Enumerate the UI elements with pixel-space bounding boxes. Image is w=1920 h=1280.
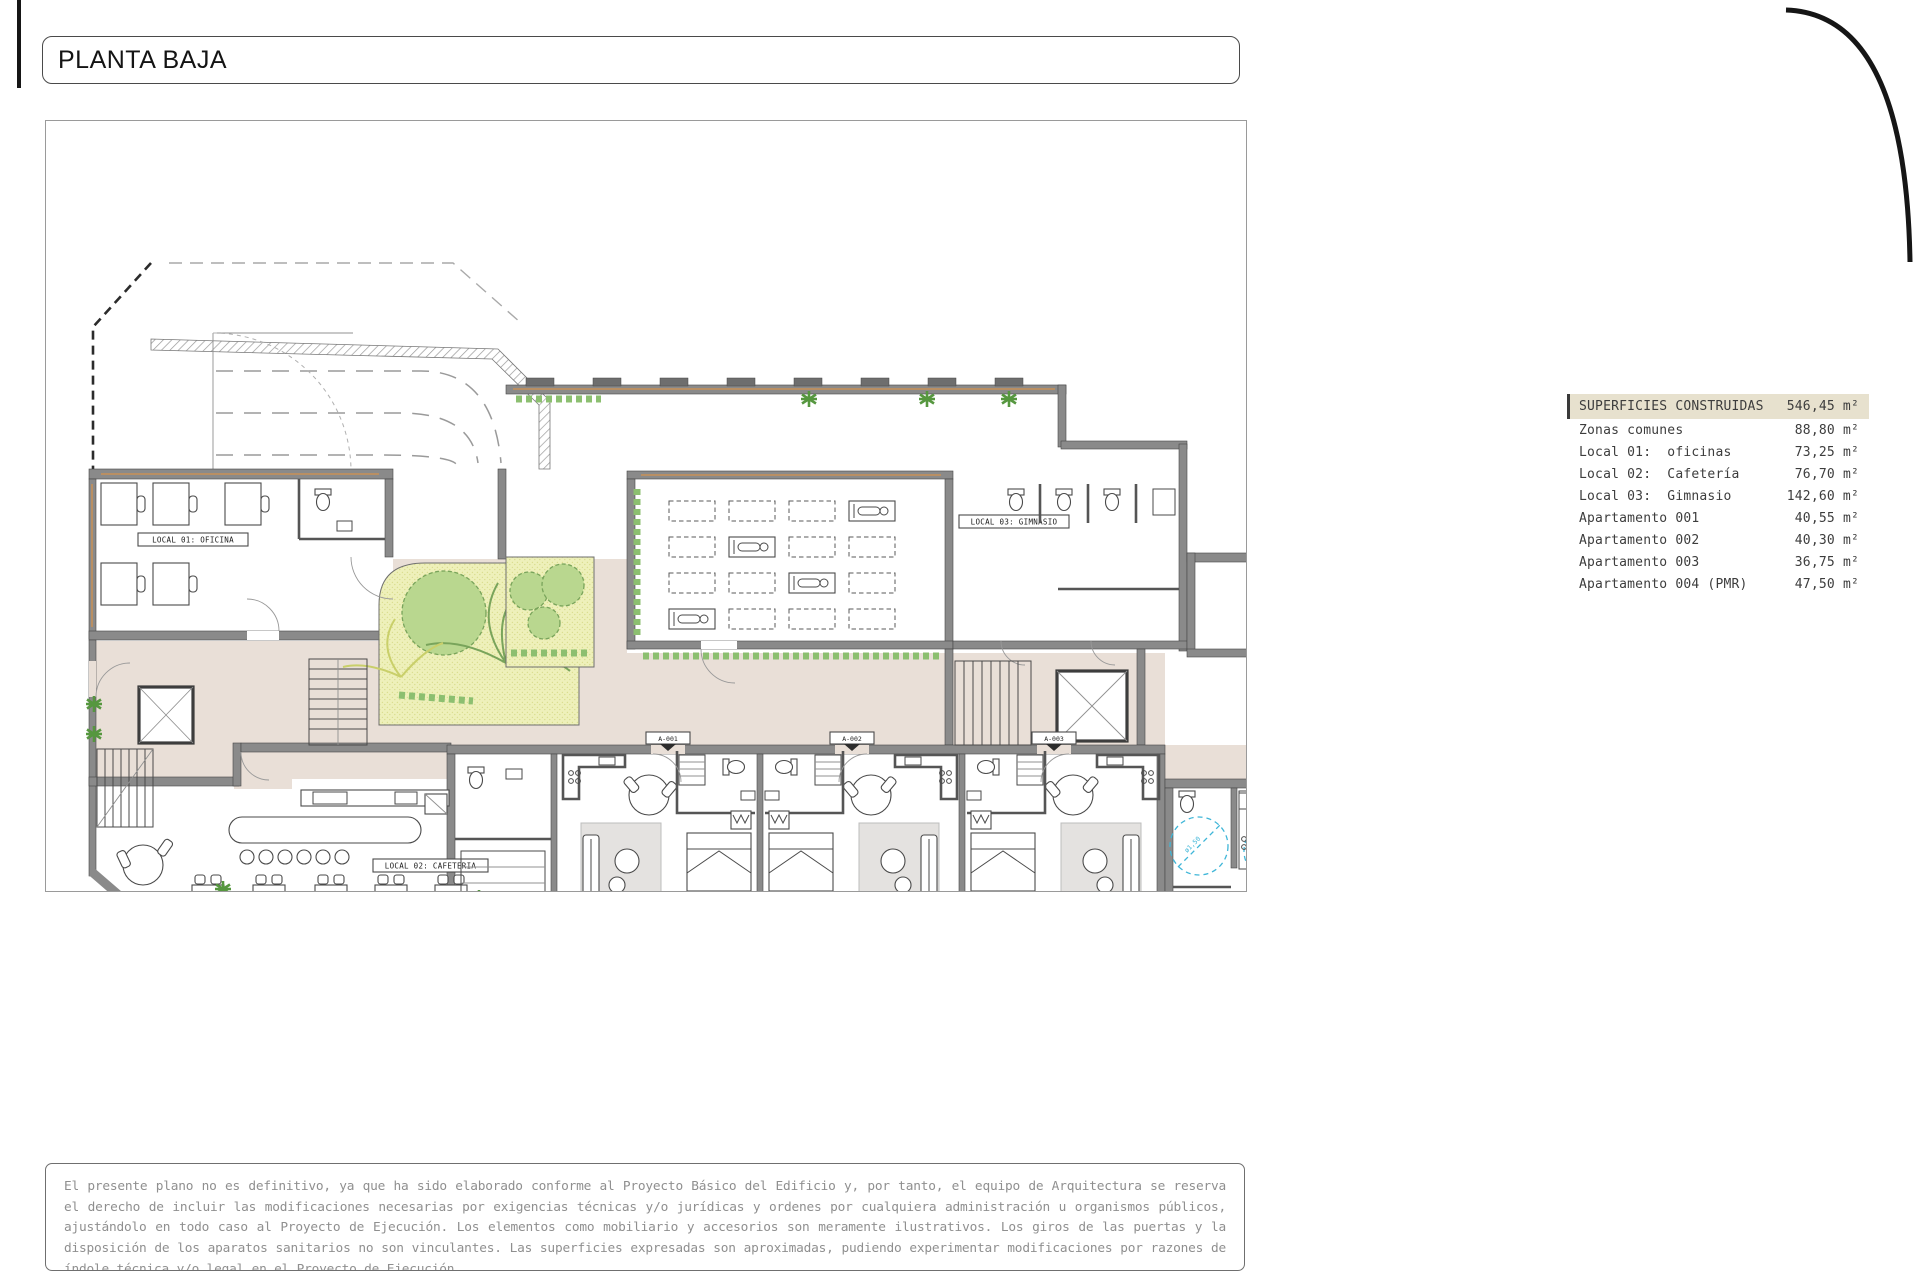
row-label: Local 01: oficinas bbox=[1579, 445, 1732, 460]
surfaces-table: SUPERFICIES CONSTRUIDAS 546,45 m² Zonas … bbox=[1567, 394, 1869, 595]
row-value: 40,30 m² bbox=[1795, 533, 1859, 548]
local-01-office: LOCAL 01: OFICINA bbox=[101, 479, 393, 631]
elevator-icon bbox=[1057, 671, 1127, 741]
frame-left-tick bbox=[17, 0, 21, 88]
row-value: 36,75 m² bbox=[1795, 555, 1859, 570]
apt-tag-a001: A-001 bbox=[658, 735, 678, 743]
surfaces-header-label: SUPERFICIES CONSTRUIDAS bbox=[1579, 399, 1764, 414]
row-value: 142,60 m² bbox=[1787, 489, 1859, 504]
table-row: Local 01: oficinas 73,25 m² bbox=[1567, 441, 1869, 463]
table-row: Apartamento 002 40,30 m² bbox=[1567, 529, 1869, 551]
row-value: 73,25 m² bbox=[1795, 445, 1859, 460]
ramp-retaining-wall bbox=[151, 339, 550, 469]
title-box: PLANTA BAJA bbox=[42, 36, 1240, 84]
page-title: PLANTA BAJA bbox=[58, 46, 227, 75]
row-label: Zonas comunes bbox=[1579, 423, 1683, 438]
table-row: Apartamento 001 40,55 m² bbox=[1567, 507, 1869, 529]
local03-label: LOCAL 03: GIMNASIO bbox=[971, 518, 1058, 527]
row-label: Local 02: Cafetería bbox=[1579, 467, 1740, 482]
row-value: 47,50 m² bbox=[1795, 577, 1859, 592]
elevator-icon bbox=[139, 687, 193, 743]
row-value: 76,70 m² bbox=[1795, 467, 1859, 482]
apartment-unit bbox=[765, 751, 957, 891]
disclaimer-text: El presente plano no es definitivo, ya q… bbox=[64, 1177, 1226, 1271]
floor-plan-container: LOCAL 01: OFICINA LOCAL 03: GIMNASIO bbox=[45, 120, 1247, 892]
table-row: Apartamento 004 (PMR) 47,50 m² bbox=[1567, 573, 1869, 595]
table-row: Apartamento 003 36,75 m² bbox=[1567, 551, 1869, 573]
frame-arc bbox=[1786, 10, 1910, 262]
row-label: Apartamento 002 bbox=[1579, 533, 1699, 548]
row-value: 40,55 m² bbox=[1795, 511, 1859, 526]
surfaces-header-value: 546,45 m² bbox=[1787, 399, 1859, 414]
vehicle-ramp bbox=[151, 333, 550, 471]
row-label: Apartamento 001 bbox=[1579, 511, 1699, 526]
row-value: 88,80 m² bbox=[1795, 423, 1859, 438]
table-row: Local 03: Gimnasio 142,60 m² bbox=[1567, 485, 1869, 507]
table-row: Local 02: Cafetería 76,70 m² bbox=[1567, 463, 1869, 485]
apt-tag-a003: A-003 bbox=[1044, 735, 1064, 743]
accessibility-circle-label: ø1,50 bbox=[1183, 835, 1203, 855]
local02-label: LOCAL 02: CAFETERIA bbox=[385, 862, 477, 871]
apartment-unit bbox=[563, 751, 755, 891]
toilet-icon bbox=[315, 489, 331, 511]
table-row: Zonas comunes 88,80 m² bbox=[1567, 419, 1869, 441]
apartment-unit bbox=[967, 751, 1159, 891]
disclaimer-box: El presente plano no es definitivo, ya q… bbox=[45, 1163, 1245, 1271]
row-label: Apartamento 004 (PMR) bbox=[1579, 577, 1748, 592]
floor-plan-drawing: LOCAL 01: OFICINA LOCAL 03: GIMNASIO bbox=[46, 121, 1246, 891]
row-label: Local 03: Gimnasio bbox=[1579, 489, 1732, 504]
row-label: Apartamento 003 bbox=[1579, 555, 1699, 570]
surfaces-table-header: SUPERFICIES CONSTRUIDAS 546,45 m² bbox=[1567, 394, 1869, 419]
apt-tag-a002: A-002 bbox=[842, 735, 862, 743]
local01-label: LOCAL 01: OFICINA bbox=[152, 536, 234, 545]
